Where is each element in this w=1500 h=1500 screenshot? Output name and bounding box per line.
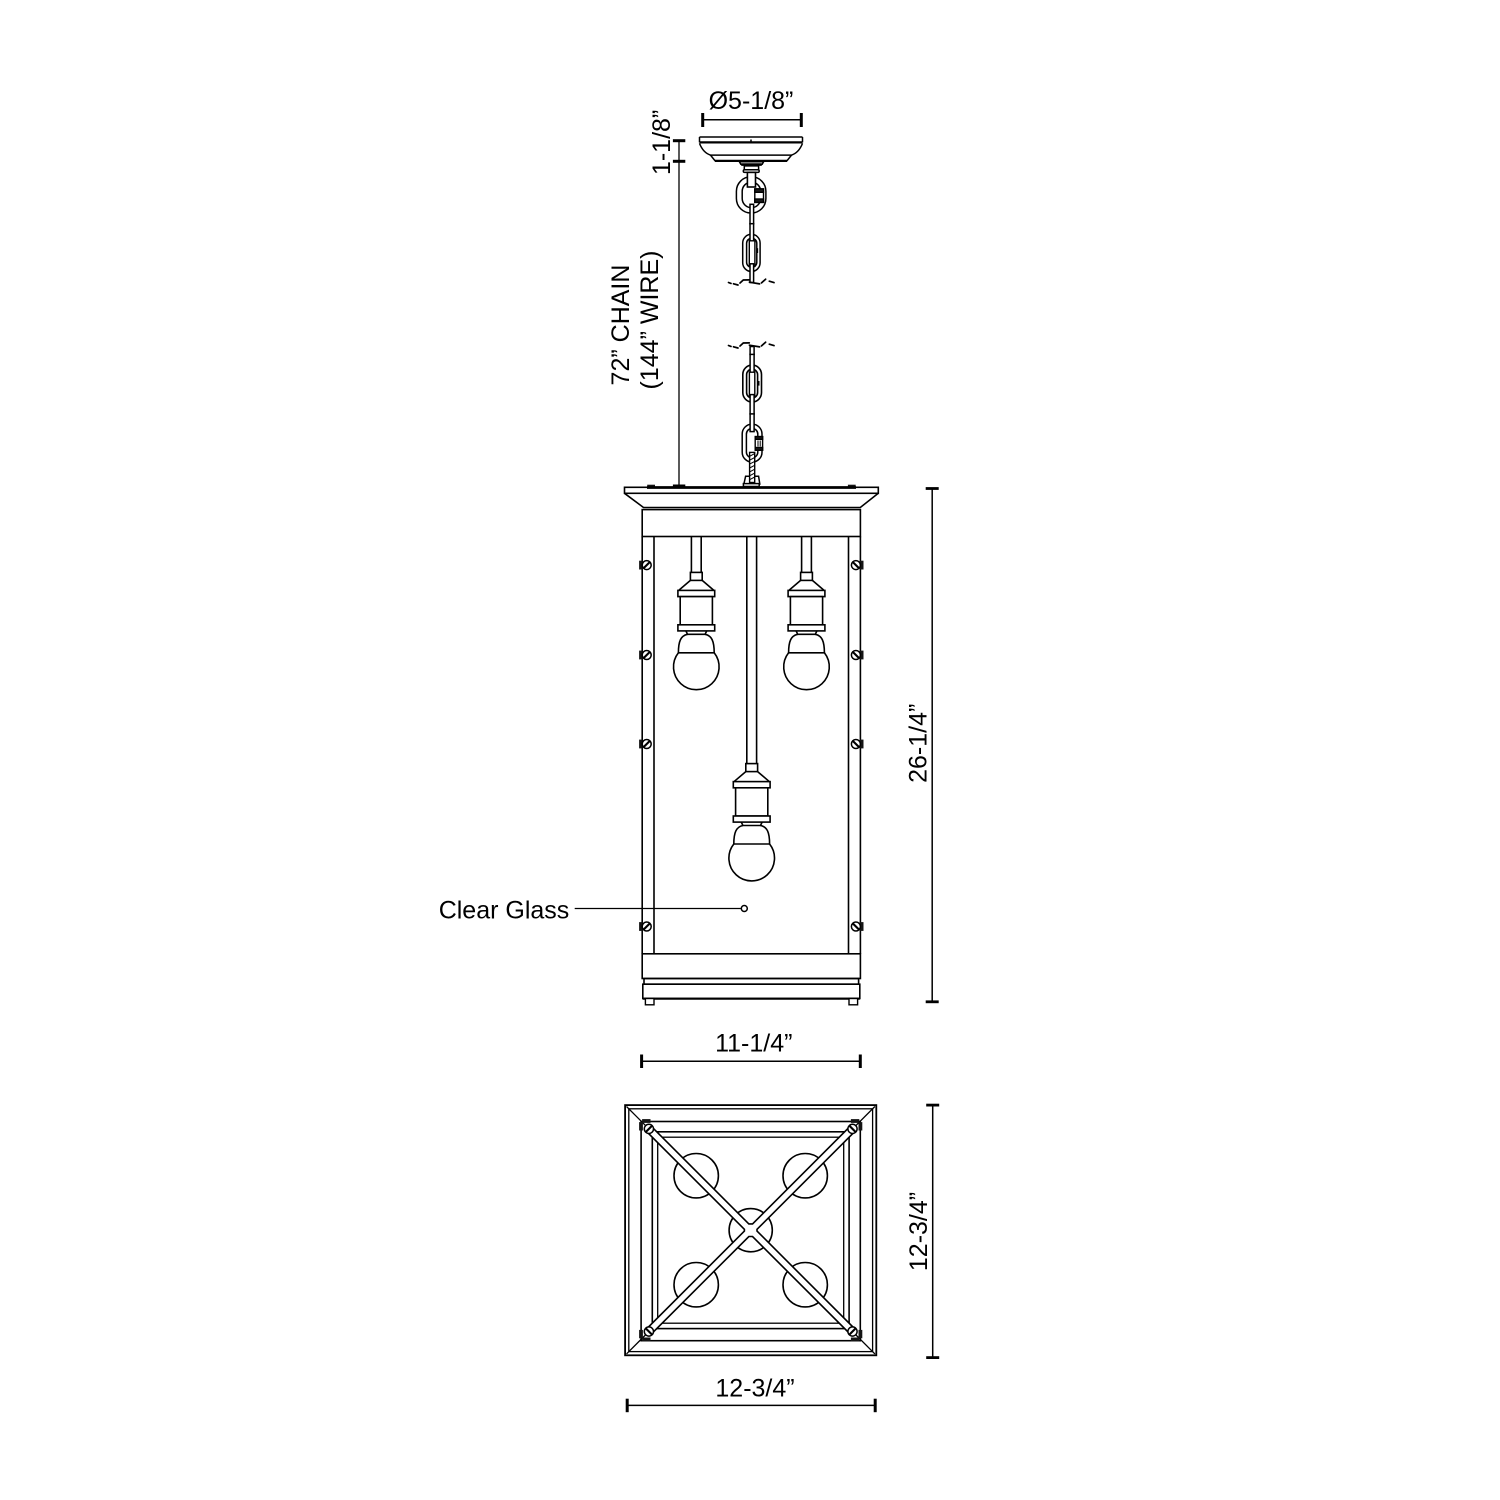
svg-text:Clear Glass: Clear Glass	[439, 897, 570, 925]
svg-text:Ø5-1/8”: Ø5-1/8”	[709, 87, 794, 115]
svg-text:11-1/4”: 11-1/4”	[715, 1030, 792, 1058]
svg-text:12-3/4”: 12-3/4”	[905, 1192, 933, 1271]
svg-text:26-1/4”: 26-1/4”	[905, 704, 933, 783]
svg-text:72” CHAIN(144” WIRE): 72” CHAIN(144” WIRE)	[607, 251, 664, 390]
svg-text:12-3/4”: 12-3/4”	[715, 1375, 794, 1403]
svg-text:1-1/8”: 1-1/8”	[648, 110, 676, 175]
